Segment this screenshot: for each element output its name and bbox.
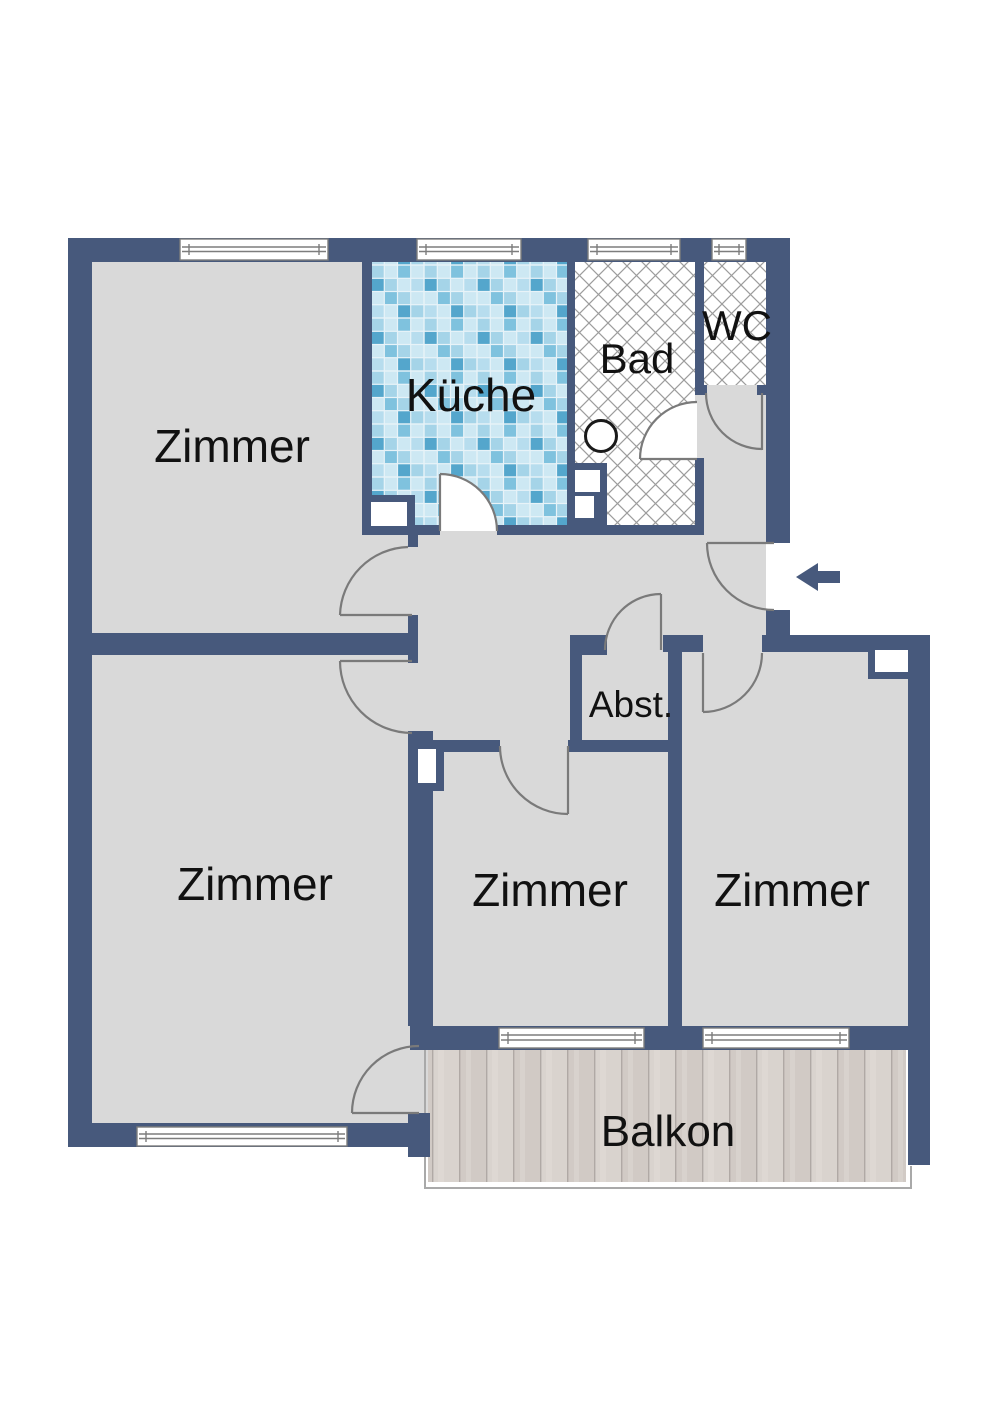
wall-kitchen-bad-bottom bbox=[497, 525, 703, 535]
bad-duct-cell-lower bbox=[575, 496, 594, 518]
window-zimmer-right bbox=[703, 1028, 849, 1048]
bad-duct-cell-upper bbox=[575, 470, 600, 492]
wall-abst-top-stub bbox=[570, 635, 607, 655]
middle-zimmer-duct-cell bbox=[418, 749, 436, 783]
label-bad: Bad bbox=[600, 335, 675, 382]
wall-exterior-right-lower bbox=[908, 635, 930, 1165]
window-zimmer-middle bbox=[499, 1028, 644, 1048]
wall-right-section-bottom bbox=[410, 1026, 928, 1050]
window-bad bbox=[588, 239, 680, 260]
wall-exterior-right-upper bbox=[766, 238, 790, 543]
wall-right-zimmer-door-jamb bbox=[663, 635, 703, 652]
wall-hall-left-stub bbox=[408, 533, 418, 547]
label-zimmer-middle: Zimmer bbox=[472, 864, 628, 916]
label-zimmer-right: Zimmer bbox=[714, 864, 870, 916]
window-zimmer-top-left bbox=[180, 239, 328, 260]
wall-hall-left-mid bbox=[408, 615, 418, 663]
wall-balcony-door-block bbox=[408, 1113, 430, 1157]
bad-sink-circle-symbol bbox=[586, 421, 617, 452]
label-kueche: Küche bbox=[406, 369, 536, 421]
label-zimmer-bottom-left: Zimmer bbox=[177, 858, 333, 910]
floorplan-page: Zimmer Küche Bad WC Abst. Zimmer Zimmer … bbox=[0, 0, 1000, 1415]
wall-abst-left bbox=[570, 655, 582, 740]
kitchen-duct-cell bbox=[371, 502, 407, 526]
wall-abst-bottom bbox=[568, 740, 682, 752]
window-zimmer-bottom-left bbox=[137, 1127, 347, 1146]
wall-bad-right-lower bbox=[695, 458, 704, 535]
entrance-arrow-icon bbox=[796, 563, 840, 591]
window-wc bbox=[712, 239, 746, 260]
label-wc: WC bbox=[702, 302, 772, 349]
wall-left-rooms-divider bbox=[80, 633, 418, 655]
label-zimmer-top-left: Zimmer bbox=[154, 420, 310, 472]
label-abstellraum: Abst. bbox=[589, 684, 673, 725]
window-kueche bbox=[417, 239, 521, 260]
wall-exterior-left bbox=[68, 238, 92, 1147]
label-balkon: Balkon bbox=[601, 1107, 736, 1156]
wall-right-section-top bbox=[762, 635, 928, 652]
right-zimmer-niche-cell bbox=[875, 650, 908, 672]
wall-kitchen-left bbox=[362, 250, 372, 535]
floorplan-drawing: Zimmer Küche Bad WC Abst. Zimmer Zimmer … bbox=[0, 0, 1000, 1415]
